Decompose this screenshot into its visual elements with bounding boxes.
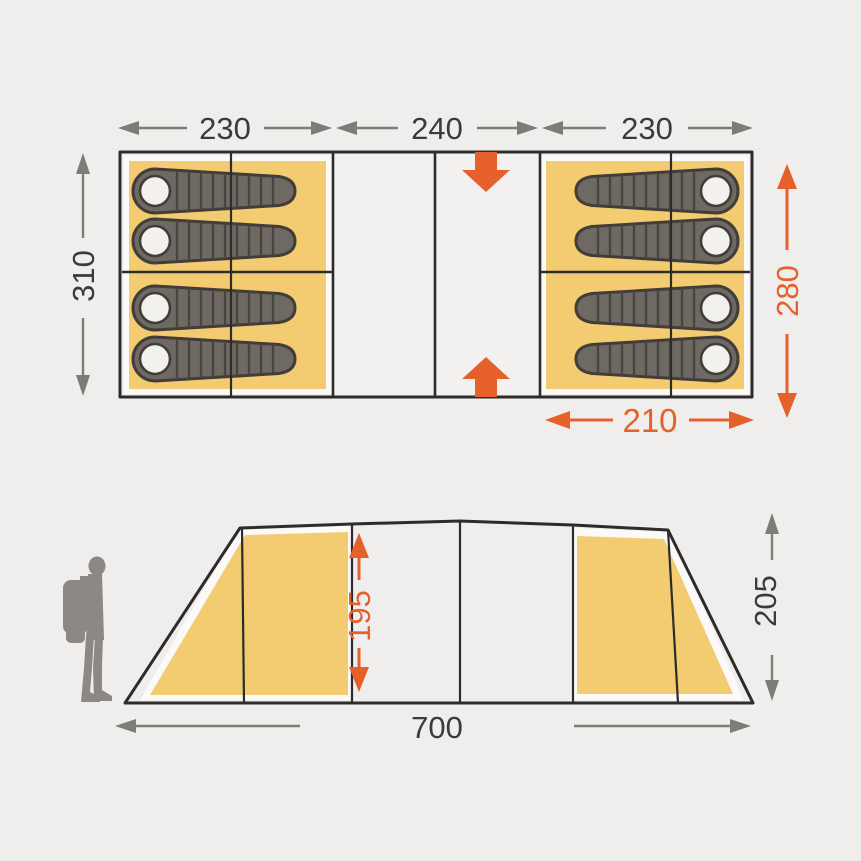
dim-label: 230: [621, 111, 673, 146]
side-view: 195 205 700: [63, 513, 783, 745]
sleeping-bag-icon: [576, 219, 738, 263]
dim-label: 700: [411, 710, 463, 745]
dim-label: 280: [770, 265, 805, 317]
sleeping-bag-icon: [576, 169, 738, 213]
dim-label: 210: [622, 402, 677, 439]
sleeping-bag-icon: [576, 286, 738, 330]
dim-total-length: 700: [115, 710, 751, 745]
sleeping-bag-icon: [133, 219, 295, 263]
sleeping-bag-icon: [133, 337, 295, 381]
dim-label: 240: [411, 111, 463, 146]
dim-right-width: 230: [542, 111, 753, 146]
diagram-canvas: 230 240 230 310: [0, 0, 861, 861]
dim-label: 195: [342, 590, 377, 642]
dim-bedroom-width: 210: [545, 402, 754, 439]
side-left-bedroom: [150, 532, 348, 695]
hiker-icon: [63, 557, 112, 703]
sleeping-bag-icon: [576, 337, 738, 381]
sleeping-bag-icon: [133, 286, 295, 330]
dim-label: 230: [199, 111, 251, 146]
dim-center-width: 240: [336, 111, 538, 146]
tent-dimensions-diagram: 230 240 230 310: [0, 0, 861, 861]
dim-outer-height: 205: [748, 513, 783, 701]
dim-inner-depth: 280: [770, 164, 805, 418]
dim-label: 310: [66, 250, 101, 302]
dim-total-depth: 310: [66, 153, 101, 396]
dim-left-width: 230: [118, 111, 332, 146]
dim-label: 205: [748, 575, 783, 627]
sleeping-bag-icon: [133, 169, 295, 213]
floor-plan-view: 230 240 230 310: [66, 111, 805, 439]
